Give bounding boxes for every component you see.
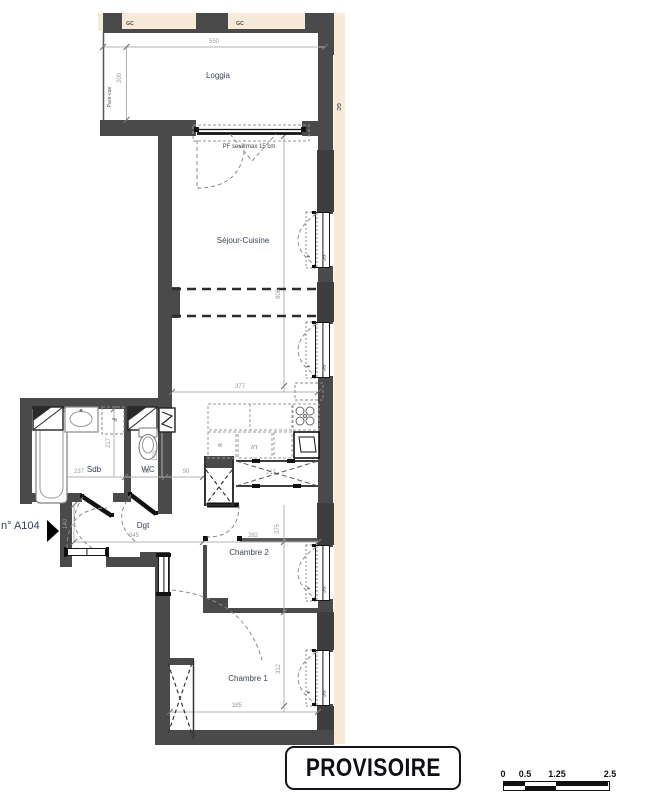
dim-200: 200 (117, 73, 123, 83)
sdb-washbasin-icon (65, 407, 98, 432)
scale-tick-125: 1.25 (548, 770, 566, 779)
gc-label-top-1: GC (126, 21, 134, 26)
room-label-chambre2: Chambre 2 (229, 549, 269, 557)
chambre1-closet (168, 660, 194, 739)
wc-door (122, 492, 158, 542)
f-label-window-3: F (307, 587, 312, 590)
provisoire-stamp-text: PROVISOIRE (306, 754, 441, 783)
dim-550: 550 (209, 39, 219, 45)
room-label-sdb: Sdb (87, 466, 101, 474)
sdb-door (74, 494, 114, 548)
plan-linework (0, 0, 645, 800)
f-label-window-4: F (307, 691, 312, 694)
scale-tick-25: 2.5 (604, 770, 617, 779)
room-label-dgt: Dgt (137, 522, 149, 530)
dim-90: 90 (183, 469, 190, 475)
fridge-label: R (218, 443, 223, 447)
loggia-pf-window (193, 125, 309, 141)
dishwasher-label: LV (251, 443, 257, 448)
pare-vue-label: Pare-vue (107, 87, 112, 108)
scale-bar-segment (556, 782, 608, 786)
scale-tick-0: 0 (500, 770, 505, 779)
scale-tick-05: 0.5 (519, 770, 532, 779)
pf-threshold-note: PF seuil max 15 cm (223, 144, 276, 150)
technical-shaft (205, 456, 233, 506)
dim-377: 377 (235, 384, 245, 390)
room-label-sejour: Séjour-Cuisine (217, 237, 269, 245)
dim-808: 808 (276, 289, 282, 299)
kitchen-counter (236, 459, 318, 488)
sdb-cabinet-icon-1 (33, 407, 63, 430)
wc-cabinet-icon-2 (128, 407, 157, 430)
scale-bar-segment (504, 782, 525, 786)
room-label-loggia: Loggia (206, 72, 230, 80)
provisoire-stamp: PROVISOIRE (285, 746, 461, 790)
chambre2-door (203, 505, 242, 541)
dim-312: 312 (276, 664, 282, 674)
f-label-sdb: F (110, 418, 116, 422)
dim-217-kitchen: 217 (266, 470, 276, 476)
gc-label-window-3: GC (321, 587, 326, 594)
loggia-door-swing (197, 134, 276, 188)
dimension-ticks (44, 44, 328, 715)
dim-98: 98 (143, 469, 150, 475)
dim-385: 385 (232, 703, 242, 709)
gc-label-window-2: GC (321, 365, 326, 372)
dim-375: 375 (275, 524, 281, 534)
cooktop-icon (296, 407, 314, 425)
entrance-arrow-icon (47, 520, 59, 542)
gc-label-window-4: GC (321, 691, 326, 698)
kitchen-sink-icon (294, 432, 319, 458)
sejour-ceiling-dashed-band (172, 289, 318, 316)
window-casement-arcs (295, 212, 323, 706)
floor-plan-canvas: Loggia Séjour-Cuisine Sdb WC Dgt Chambre… (0, 0, 645, 800)
scale-bar-segment (525, 786, 556, 790)
dim-140: 140 (63, 519, 69, 529)
unit-number-label: n° A104 (1, 521, 40, 532)
chambre1-door-swing (172, 590, 262, 660)
gc-label-right: GC (335, 103, 340, 111)
room-label-chambre1: Chambre 1 (228, 675, 268, 683)
scale-bar (503, 781, 610, 791)
dim-217-sdb: 217 (106, 438, 112, 448)
dim-282: 282 (248, 533, 258, 539)
gc-label-top-2: GC (236, 21, 244, 26)
dim-150: 150 (153, 451, 159, 461)
gc-label-window-1: GC (321, 255, 326, 262)
heater-icon (159, 408, 175, 432)
dim-237: 237 (74, 469, 84, 475)
dim-345: 345 (129, 533, 139, 539)
f-label-window-1: F (307, 255, 312, 258)
f-label-window-2: F (307, 365, 312, 368)
